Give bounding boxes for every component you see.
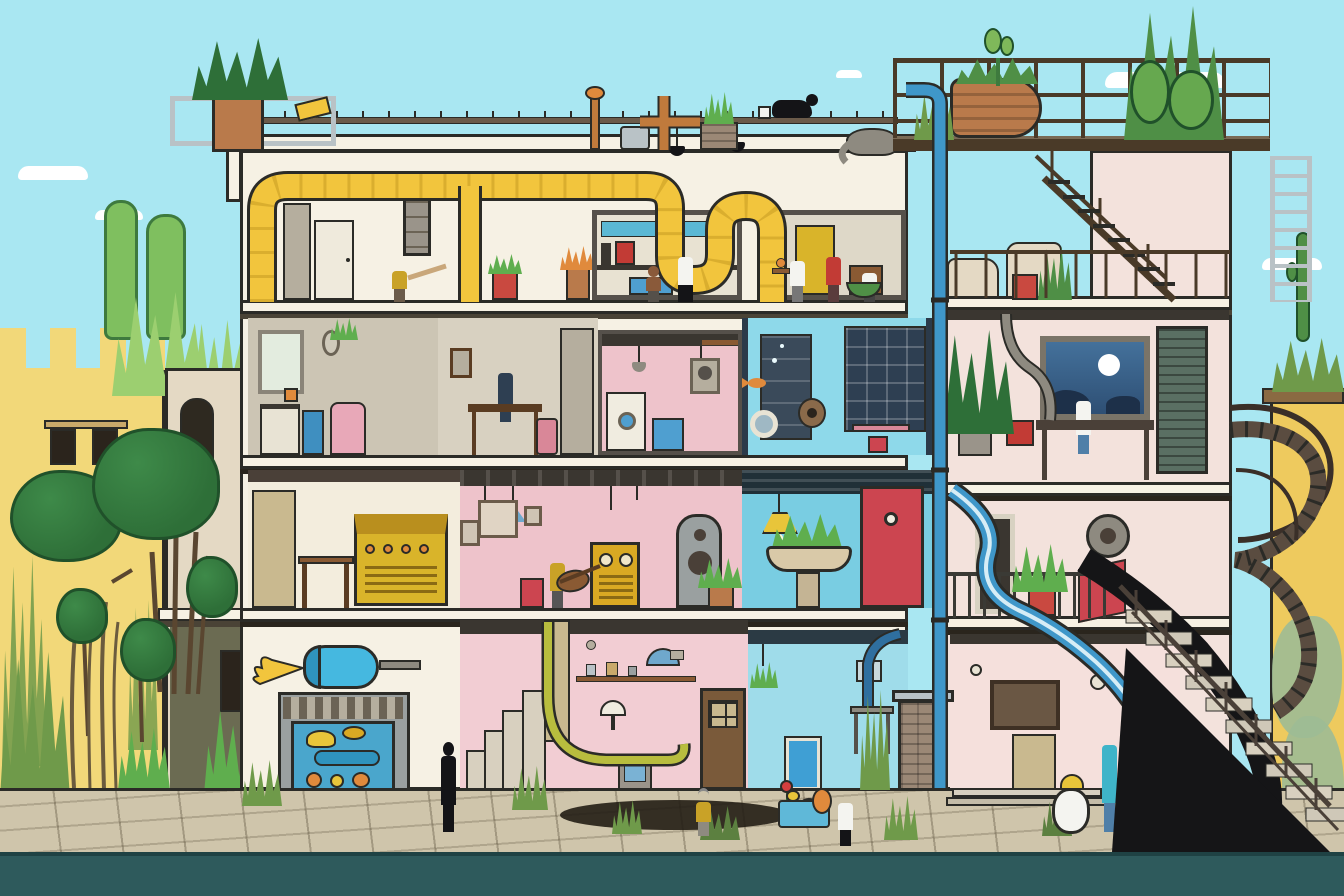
laundry-nook xyxy=(598,330,742,455)
office-desk-leg xyxy=(1144,430,1149,480)
picture-frame xyxy=(460,520,480,546)
radio-dial xyxy=(619,553,633,567)
elephant-ornament xyxy=(846,128,898,156)
pothole-shadow xyxy=(560,800,790,830)
picture-frame xyxy=(478,500,518,538)
chef-dish-orange xyxy=(776,258,786,268)
sink-unit xyxy=(260,404,300,455)
street-room xyxy=(950,634,1180,790)
counter xyxy=(597,265,737,270)
torso xyxy=(392,271,407,289)
hanging-plant-cords xyxy=(762,644,764,666)
porthole xyxy=(750,410,778,438)
storage-shelf xyxy=(252,490,296,608)
amp-cabinet xyxy=(354,514,448,606)
utility-box xyxy=(620,126,650,150)
cellar-step xyxy=(466,750,486,790)
workroom xyxy=(438,318,598,455)
wall-doodad xyxy=(586,640,596,650)
parapet-step xyxy=(226,150,242,202)
torso xyxy=(646,277,661,291)
window-plants-silhouette xyxy=(1106,396,1140,414)
wood-shelf-unit xyxy=(1012,734,1056,790)
roof-guard-rail xyxy=(258,117,898,124)
pink-armchair xyxy=(330,402,366,455)
wall-gauge xyxy=(1090,674,1106,690)
child xyxy=(834,792,856,846)
legs xyxy=(840,830,851,846)
kitchen-tile-strip xyxy=(601,221,733,237)
hanging-tool xyxy=(636,486,638,500)
framed-artwork xyxy=(990,680,1060,730)
night-window xyxy=(1040,336,1150,420)
mural-duck xyxy=(342,726,366,740)
foreground-strip xyxy=(0,852,1344,896)
washroom-plant xyxy=(750,662,778,688)
mural-fruit xyxy=(330,774,344,788)
wall-cabinet-frame xyxy=(403,198,431,256)
pink-desk xyxy=(852,424,910,432)
legs xyxy=(1078,435,1089,454)
amp-dial xyxy=(383,544,393,554)
wall-washer-drum xyxy=(698,366,712,380)
brick-roof-planter xyxy=(700,122,738,150)
blue-crate xyxy=(652,418,684,451)
torso xyxy=(441,756,456,805)
head xyxy=(840,792,851,803)
legs xyxy=(1104,803,1115,832)
orange-crate xyxy=(284,388,298,402)
bathroom xyxy=(742,470,932,608)
desk-leg xyxy=(472,412,476,455)
side-table xyxy=(850,706,894,714)
torso xyxy=(678,257,693,285)
ladder-shelf xyxy=(544,620,570,742)
dark-appliance xyxy=(601,243,611,265)
broccoli-tree xyxy=(186,556,238,618)
wall-gauge xyxy=(970,664,982,676)
red-stool xyxy=(520,578,544,608)
washer-window xyxy=(618,412,636,430)
head xyxy=(500,362,511,373)
cat-head xyxy=(806,94,818,106)
crab-valve-pipe xyxy=(590,96,600,150)
workshop xyxy=(248,470,460,608)
red-stool xyxy=(868,436,888,453)
column-tree xyxy=(104,200,138,340)
door-knob xyxy=(346,258,350,262)
night-office-ceiling xyxy=(935,310,1229,320)
head xyxy=(1104,734,1115,745)
chef-dish xyxy=(772,268,790,274)
mural-fruit xyxy=(352,772,370,788)
roof-planter-pot xyxy=(212,94,264,152)
roof-palm-fronds xyxy=(192,38,288,100)
wing-slab xyxy=(932,482,1232,496)
castle-window xyxy=(50,429,76,465)
terrace-slab xyxy=(932,296,1232,310)
stone-step xyxy=(1226,720,1272,733)
grey-studio xyxy=(248,318,438,455)
torso xyxy=(790,261,805,286)
cloud xyxy=(18,166,88,180)
navy-cabinet-large xyxy=(844,326,926,432)
cactus-paddle-big xyxy=(1130,60,1170,124)
basin-pedestal xyxy=(796,572,820,608)
legs xyxy=(678,285,693,302)
desk-worker xyxy=(494,362,516,422)
office-desk-leg xyxy=(1042,430,1047,480)
joist-ceiling xyxy=(460,470,742,486)
amp-vents xyxy=(365,566,437,596)
shelf-jar xyxy=(606,662,618,676)
drum-machine-core xyxy=(1100,528,1116,544)
studio-window xyxy=(258,330,304,394)
side-table-leg xyxy=(854,714,858,754)
floor-slab xyxy=(240,300,908,314)
wall-shelf xyxy=(576,676,696,682)
cellar-step xyxy=(484,730,504,790)
paddle-cactus-stem xyxy=(996,58,1000,86)
mural-fruit xyxy=(306,772,322,788)
stone-basin xyxy=(766,546,852,572)
head xyxy=(698,788,709,802)
shelf-jar xyxy=(628,666,637,676)
amp-dial xyxy=(419,544,429,554)
legs xyxy=(828,285,839,302)
bench-leg xyxy=(344,564,349,608)
chimney-cap xyxy=(892,690,954,702)
desk xyxy=(468,404,542,412)
torso xyxy=(696,802,711,822)
amp-dial xyxy=(401,544,411,554)
laundry-shelf xyxy=(702,340,738,345)
broccoli-tree xyxy=(120,618,176,682)
head xyxy=(443,742,454,756)
music-room xyxy=(460,470,742,608)
red-bath-door xyxy=(860,486,924,608)
radio-cabinet xyxy=(590,542,640,608)
mural-car xyxy=(314,750,380,766)
crab-valve-knob xyxy=(585,86,605,100)
white-mug xyxy=(758,106,771,119)
chef xyxy=(786,250,808,302)
child-helper xyxy=(642,266,664,302)
washroom-poster xyxy=(856,660,882,682)
wall-doodad xyxy=(670,650,684,660)
mural-mosaic-top xyxy=(283,697,403,719)
hanging-plant xyxy=(330,318,358,340)
paddle-cactus-lobe xyxy=(1000,36,1014,56)
roof-sprigs xyxy=(704,92,734,124)
flower-pot xyxy=(566,268,590,300)
air-bubble xyxy=(780,344,784,348)
orange-figure xyxy=(812,788,832,814)
pendant-cone-shade xyxy=(632,362,646,372)
speaker-center xyxy=(807,408,817,418)
pendant-lamp xyxy=(676,122,678,148)
full-moon xyxy=(1098,354,1120,376)
office-desk xyxy=(1036,420,1154,430)
plant-pot xyxy=(708,586,734,608)
cutaway-building-illustration xyxy=(0,0,1344,896)
cook-woman xyxy=(674,246,696,302)
woman-in-red xyxy=(822,246,844,302)
head xyxy=(648,266,659,277)
right-wing-upper-wall xyxy=(1090,150,1232,304)
legs xyxy=(792,286,803,302)
head xyxy=(828,246,839,257)
blue-bin xyxy=(302,410,324,455)
yellow-bundle xyxy=(786,790,800,802)
mural-window xyxy=(291,721,395,793)
speaker-tweeter xyxy=(694,529,706,541)
air-bubble xyxy=(772,358,777,363)
broccoli-tree xyxy=(92,428,220,540)
round-robot-body xyxy=(1052,788,1090,834)
bench-leg xyxy=(302,564,307,608)
head xyxy=(394,260,405,271)
cloud xyxy=(836,70,862,78)
picture-frame xyxy=(524,506,542,526)
locker xyxy=(283,203,311,300)
kitchen-nook xyxy=(592,210,742,300)
grey-door xyxy=(560,328,594,455)
column-tree xyxy=(146,214,186,340)
broccoli-tree xyxy=(56,588,108,644)
aquarium-room xyxy=(742,318,932,455)
head xyxy=(680,246,691,257)
head xyxy=(792,250,803,261)
wall-ladder xyxy=(1270,156,1312,302)
castle-lintel xyxy=(44,420,128,429)
right-house-roof-grass xyxy=(1272,338,1344,392)
tank-nozzle xyxy=(379,660,421,670)
mural-duck xyxy=(306,730,336,748)
cellar-beam xyxy=(460,620,748,634)
woman-turquoise xyxy=(1098,734,1120,832)
shelf-jar xyxy=(586,664,596,676)
ornate-urn xyxy=(950,78,1042,138)
torso xyxy=(498,373,513,404)
pink-suitcase xyxy=(536,418,558,455)
cactus-paddle-big xyxy=(1168,70,1214,130)
floor-slab xyxy=(240,455,908,469)
hanging-tool xyxy=(610,486,612,510)
amp-dial xyxy=(365,544,375,554)
street-room-band xyxy=(950,634,1180,644)
head xyxy=(864,262,875,273)
pink-cellar xyxy=(460,620,748,790)
legs xyxy=(552,591,563,608)
mushroom-lamp-dome xyxy=(600,700,626,716)
balcony-planter xyxy=(1028,590,1056,616)
cabinet-blue-panel xyxy=(624,764,646,782)
radio-dial xyxy=(599,553,613,567)
legs xyxy=(394,289,405,302)
head xyxy=(552,552,563,563)
elder-resident xyxy=(692,788,714,836)
torso xyxy=(826,257,841,285)
cellar-door-panes xyxy=(708,700,738,728)
workshop-beam xyxy=(248,470,460,482)
washroom-beam xyxy=(748,630,908,644)
door-porthole xyxy=(884,512,898,526)
goldfish xyxy=(748,378,766,388)
wooden-bench xyxy=(298,556,354,564)
paddle-cactus-lobe xyxy=(984,28,1002,54)
radio-slots xyxy=(599,575,633,601)
torso xyxy=(1102,745,1117,803)
batter xyxy=(388,260,410,302)
coffee-machine xyxy=(615,241,635,265)
lamp-cord xyxy=(778,494,780,514)
mushroom-lamp-stem xyxy=(611,716,615,730)
cellar-step xyxy=(522,690,546,790)
legs xyxy=(443,805,454,832)
red-planter xyxy=(492,272,518,300)
wall-frame xyxy=(450,348,472,378)
head xyxy=(1078,390,1089,401)
legs xyxy=(648,291,659,302)
torso xyxy=(838,803,853,830)
silhouette-passerby xyxy=(436,742,460,832)
legs xyxy=(698,822,709,836)
landing-red-planter xyxy=(1012,274,1038,300)
louvred-shutter xyxy=(1156,326,1208,474)
